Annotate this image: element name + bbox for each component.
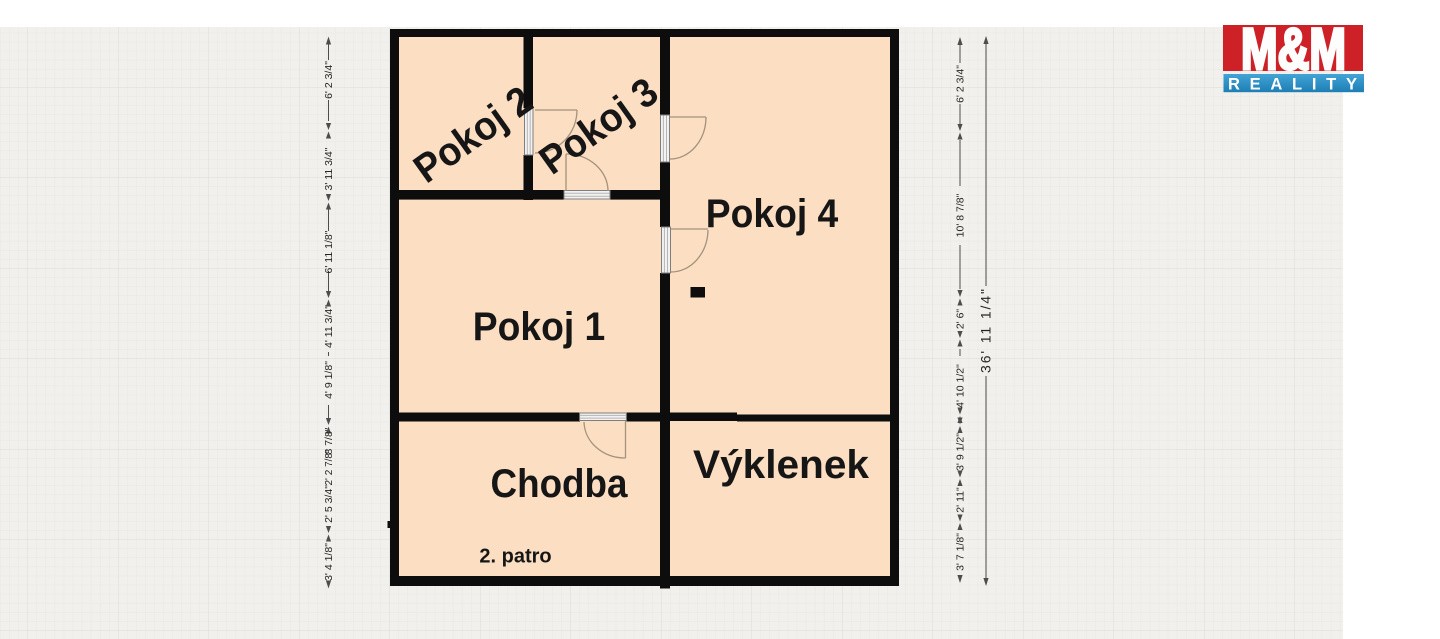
svg-text:6' 2 3/4": 6' 2 3/4" bbox=[955, 65, 967, 103]
svg-text:Chodba: Chodba bbox=[491, 462, 629, 506]
svg-text:10' 8 7/8": 10' 8 7/8" bbox=[955, 193, 967, 237]
svg-text:Pokoj 1: Pokoj 1 bbox=[473, 305, 606, 349]
svg-text:3' 11 3/4": 3' 11 3/4" bbox=[323, 147, 335, 190]
svg-text:Pokoj 4: Pokoj 4 bbox=[706, 192, 839, 236]
svg-text:36' 11 1/4": 36' 11 1/4" bbox=[978, 289, 994, 373]
svg-text:2' 2 7/8": 2' 2 7/8" bbox=[323, 449, 335, 485]
svg-text:4' 11 3/4": 4' 11 3/4" bbox=[323, 305, 335, 348]
svg-text:4' 9 1/8": 4' 9 1/8" bbox=[323, 361, 335, 399]
svg-text:4' 10 1/2": 4' 10 1/2" bbox=[955, 364, 967, 408]
svg-text:2' 6": 2' 6" bbox=[955, 309, 967, 330]
svg-text:3' 7 1/8": 3' 7 1/8" bbox=[955, 533, 967, 571]
svg-text:2. patro: 2. patro bbox=[479, 546, 551, 568]
svg-text:6' 2 3/4": 6' 2 3/4" bbox=[323, 61, 335, 99]
svg-text:3' 9 1/2": 3' 9 1/2" bbox=[955, 433, 967, 471]
svg-text:Výklenek: Výklenek bbox=[693, 443, 870, 487]
svg-text:3' 4 1/8": 3' 4 1/8" bbox=[323, 543, 335, 581]
svg-text:6' 11 1/8": 6' 11 1/8" bbox=[323, 230, 335, 273]
svg-text:2' 5 3/4": 2' 5 3/4" bbox=[323, 485, 335, 523]
svg-text:2' 11": 2' 11" bbox=[955, 487, 967, 513]
svg-text:M&M: M&M bbox=[1241, 17, 1346, 82]
